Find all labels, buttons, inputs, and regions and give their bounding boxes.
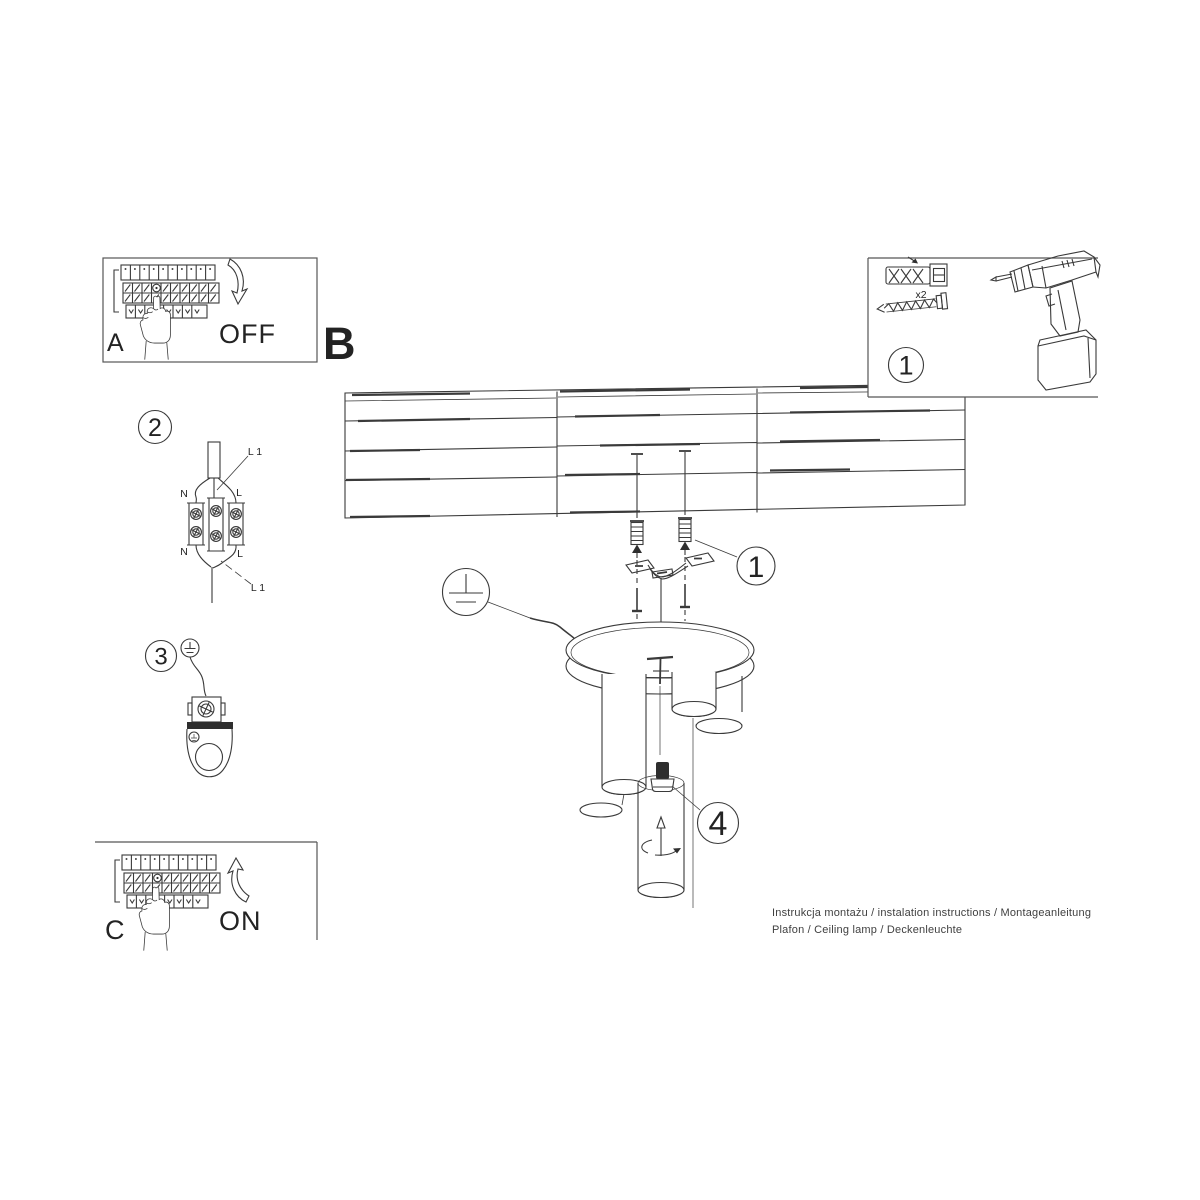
cable-drawing bbox=[208, 442, 220, 478]
terminal-block-drawing bbox=[187, 498, 245, 551]
line-label-top: L 1 bbox=[248, 446, 262, 458]
svg-text:1: 1 bbox=[748, 551, 765, 584]
step-2-badge: 2 bbox=[139, 411, 172, 444]
footer-line1: Instrukcja montażu / instalation instruc… bbox=[772, 907, 1091, 919]
svg-text:4: 4 bbox=[709, 805, 728, 843]
svg-text:2: 2 bbox=[148, 414, 162, 442]
mounting-screw-icon bbox=[679, 451, 691, 515]
shade-cylinder-left bbox=[602, 674, 646, 795]
canopy-screw-icon bbox=[680, 584, 690, 607]
wire-curves-in bbox=[195, 478, 236, 503]
neutral-label-out: N bbox=[180, 546, 188, 558]
anchor-quantity-label: x2 bbox=[915, 289, 926, 301]
wall-plug-anchor-icon bbox=[678, 518, 692, 555]
instruction-sheet: x2 1 bbox=[0, 0, 1200, 1200]
neutral-label-in: N bbox=[180, 488, 188, 500]
power-on-label: ON bbox=[219, 906, 262, 936]
mounting-bracket-icon bbox=[626, 553, 714, 579]
panel-c-label: C bbox=[105, 915, 125, 945]
panel-c: C ON bbox=[95, 842, 317, 951]
lamp-drawing: 4 bbox=[566, 622, 754, 908]
wire-curves-out bbox=[196, 545, 236, 603]
circuit-breaker-icon bbox=[114, 265, 219, 318]
shade-ring bbox=[580, 803, 622, 817]
gu10-bulb-icon bbox=[651, 762, 674, 792]
panel-a: A OFF bbox=[103, 258, 317, 362]
wall-plug-anchor-icon bbox=[630, 521, 644, 558]
svg-text:1: 1 bbox=[898, 351, 913, 381]
panel-a-label: A bbox=[107, 329, 124, 357]
live-label-in: L bbox=[236, 487, 242, 499]
mounting-assembly: 1 bbox=[626, 451, 775, 622]
section-b-label: B bbox=[323, 318, 356, 369]
line-label-bottom: L 1 bbox=[251, 582, 265, 594]
earthing-step: 3 bbox=[146, 639, 234, 777]
shade-cylinder-right bbox=[672, 672, 716, 717]
earth-symbol-icon bbox=[181, 639, 199, 657]
power-off-label: OFF bbox=[219, 319, 276, 349]
canopy-screw-icon bbox=[632, 588, 642, 611]
ceiling-drawing bbox=[345, 384, 965, 518]
step-3-badge: 3 bbox=[146, 641, 177, 672]
curved-arrow-down-icon bbox=[228, 259, 247, 304]
curved-arrow-up-icon bbox=[228, 858, 249, 902]
ground-callout bbox=[443, 569, 577, 641]
tools-panel: x2 1 bbox=[868, 251, 1200, 397]
footer-line2: Plafon / Ceiling lamp / Deckenleuchte bbox=[772, 924, 962, 936]
circuit-breaker-icon bbox=[115, 855, 220, 908]
instruction-diagram: x2 1 bbox=[0, 0, 1200, 1200]
footer-caption: Instrukcja montażu / instalation instruc… bbox=[772, 907, 1091, 936]
live-label-out: L bbox=[237, 548, 243, 560]
svg-text:3: 3 bbox=[154, 644, 167, 671]
wiring-step: 2 L 1 N L N L L 1 bbox=[139, 411, 266, 604]
earth-terminal-drawing bbox=[187, 697, 233, 777]
mounting-screw-icon bbox=[631, 454, 643, 518]
